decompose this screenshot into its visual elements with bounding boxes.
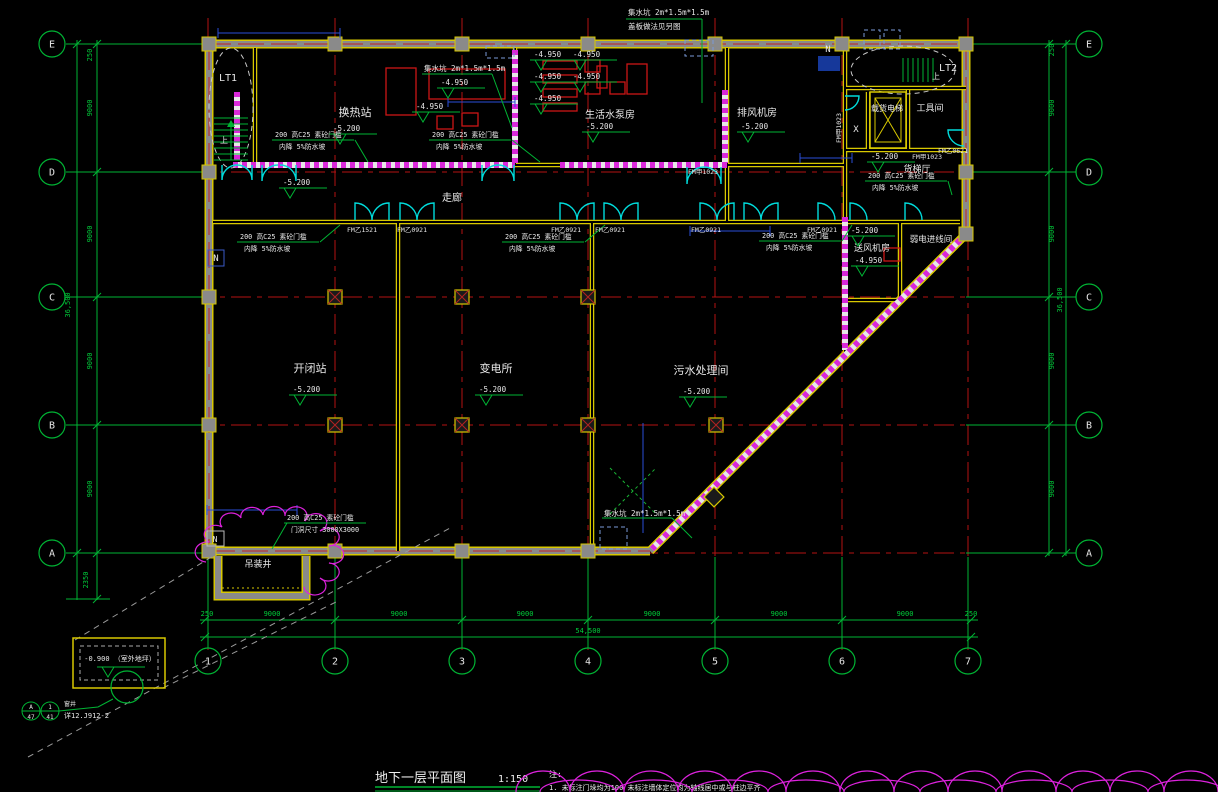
dim-label: 54,500: [575, 627, 600, 635]
plan-label: 集水坑 2m*1.5m*1.5m: [424, 63, 506, 73]
plan-label: N: [825, 45, 830, 55]
plan-label: N: [213, 535, 218, 544]
notes-label: 注:: [549, 769, 562, 779]
dim-label: 36,500: [64, 292, 72, 317]
notes-line1: 1. 未标注门垛均为100 未标注墙体定位均为轴线居中或与柱边平齐: [549, 783, 761, 792]
spot-level-value: -5.200: [683, 387, 711, 396]
dim-label: 9000: [644, 610, 661, 618]
spot-level-value: -4.950: [534, 94, 562, 103]
plan-label: LT1: [219, 73, 237, 84]
grid-bubble-label: A: [1086, 549, 1092, 560]
dim-label: 9000: [86, 481, 94, 498]
grid-bubble-label: C: [1086, 293, 1092, 304]
detail-bubble-number: 1: [48, 704, 52, 711]
grid-bubble-label: 7: [965, 657, 971, 668]
grid-bubble-label: C: [49, 293, 55, 304]
plan-label: -0.900 （室外地坪）: [84, 654, 156, 663]
detail-bubble-sheet: 41: [46, 714, 54, 721]
drawing-scale: 1:150: [498, 774, 528, 785]
grid-bubble-label: 1: [205, 657, 211, 668]
spot-level-value: -4.950: [441, 78, 469, 87]
plan-label: 上: [220, 136, 228, 145]
dim-label: 9000: [517, 610, 534, 618]
plan-label: 开闭站: [294, 361, 327, 375]
vent-box: [818, 56, 840, 71]
dim-label: 9000: [1048, 226, 1056, 243]
dim-label: 9000: [1048, 481, 1056, 498]
spot-level-value: -5.200: [283, 178, 311, 187]
spot-level-value: -4.950: [573, 50, 601, 59]
plan-label: 集水坑 2m*1.5m*1.5m: [628, 7, 710, 17]
dim-label: 250: [1048, 44, 1056, 57]
dim-label: 2350: [82, 572, 90, 589]
spot-level-value: -4.950: [534, 72, 562, 81]
detail-bubble-sheet: 47: [27, 714, 35, 721]
grid-bubble-label: B: [49, 421, 55, 432]
dim-label: 9000: [86, 353, 94, 370]
spot-level-value: -4.950: [573, 72, 601, 81]
grid-bubble-label: E: [49, 40, 55, 51]
plan-label: 弱电进线间: [910, 234, 953, 245]
sill-note-line2: 内降 5%防水坡: [436, 142, 482, 151]
detail-bubble-number: A: [29, 704, 33, 711]
sill-note-line1: 200 高C25 素砼门槛: [762, 231, 829, 240]
plan-label: 换热站: [339, 105, 372, 119]
grid-bubble-label: E: [1086, 40, 1092, 51]
grid-bubble-label: 5: [712, 657, 718, 668]
sill-note-line2: 内降 5%防水坡: [509, 244, 555, 253]
spot-level-value: -4.950: [416, 102, 444, 111]
spot-level-value: -5.200: [741, 122, 769, 131]
plan-label: 上: [932, 72, 940, 81]
sill-note-line1: 200 高C25 素砼门槛: [432, 130, 499, 139]
grid-bubble-label: 2: [332, 657, 338, 668]
dim-label: 250: [965, 610, 978, 618]
spot-level-value: -5.200: [586, 122, 614, 131]
spot-level-value: -4.950: [855, 256, 883, 265]
spot-level-value: -5.200: [851, 226, 879, 235]
spot-level-value: -5.200: [479, 385, 507, 394]
dim-label: 9000: [86, 100, 94, 117]
plan-label: FM乙0921: [397, 226, 427, 234]
plan-label: 生活水泵房: [585, 108, 635, 121]
plan-label: FM乙0621: [938, 147, 968, 155]
dim-label: 36,500: [1056, 287, 1064, 312]
sill-note-line2: 内降 5%防水坡: [766, 243, 812, 252]
sill-note-line1: 200 高C25 素砼门槛: [275, 130, 342, 139]
dim-label: 9000: [897, 610, 914, 618]
grid-bubble-label: A: [49, 549, 55, 560]
dim-label: 250: [86, 49, 94, 62]
sill-note-line1: 200 高C25 素砼门槛: [505, 232, 572, 241]
grid-bubble-label: B: [1086, 421, 1092, 432]
plan-label: FM甲1023: [835, 113, 843, 143]
plan-label: 排风机房: [737, 106, 777, 119]
stair-lt2-treads: [903, 58, 933, 82]
sill-note-line2: 内降 5%防水坡: [244, 244, 290, 253]
plan-label: FM乙0921: [595, 226, 625, 234]
plan-label: 详12.J912-2: [64, 711, 109, 720]
grid-bubble-label: 6: [839, 657, 845, 668]
plan-label: N: [213, 254, 218, 264]
plan-label: X: [853, 125, 859, 135]
plan-label: 工具间: [916, 102, 943, 114]
dim-label: 9000: [86, 226, 94, 243]
dim-label: 9000: [391, 610, 408, 618]
plan-label: 吊装井: [244, 558, 271, 570]
plan-label: FM甲1023: [688, 168, 718, 176]
plan-label: FM乙0921: [691, 226, 721, 234]
grid-bubble-label: 3: [459, 657, 465, 668]
dim-label: 9000: [1048, 353, 1056, 370]
plan-label: LT2: [939, 63, 957, 74]
cad-drawing-viewport: E D C B A E D C B A: [0, 0, 1218, 792]
sill-note-line2: 内降 5%防水坡: [279, 142, 325, 151]
sill-note-line2: 内降 5%防水坡: [872, 183, 918, 192]
plan-label: 载货电梯: [871, 103, 903, 113]
dim-label: 250: [201, 610, 214, 618]
plan-label: 集水坑 2m*1.5m*1.5m: [604, 508, 686, 518]
plan-label: 污水处理间: [674, 364, 729, 377]
grid-bubble-label: D: [1086, 168, 1092, 179]
basement-floor-plan: E D C B A E D C B A: [0, 0, 1218, 792]
spot-level-value: -5.200: [293, 385, 321, 394]
plan-label: 变电所: [480, 361, 513, 375]
grid-bubble-label: 4: [585, 657, 591, 668]
plan-label: 走廊: [442, 191, 462, 204]
spot-level-value: -5.200: [871, 152, 899, 161]
dim-label: 9000: [771, 610, 788, 618]
sill-note-line1: 200 高C25 素砼门槛: [287, 513, 354, 522]
grid-bubble-label: D: [49, 168, 55, 179]
sill-note-line1: 200 高C25 素砼门槛: [240, 232, 307, 241]
plan-label: FM乙1521: [347, 226, 377, 234]
sill-note-line1: 200 高C25 素砼门槛: [868, 171, 935, 180]
dim-label: 9000: [1048, 100, 1056, 117]
sill-note: 200 高C25 素砼门槛 门洞尺寸 3000X3000: [284, 513, 366, 534]
plan-label: 窗井: [64, 700, 76, 708]
plan-label: 盖板做法见另图: [628, 21, 681, 31]
sill-note-line2: 门洞尺寸 3000X3000: [291, 525, 359, 534]
spot-level-value: -4.950: [534, 50, 562, 59]
dim-label: 9000: [264, 610, 281, 618]
drawing-title: 地下一层平面图: [375, 771, 466, 786]
